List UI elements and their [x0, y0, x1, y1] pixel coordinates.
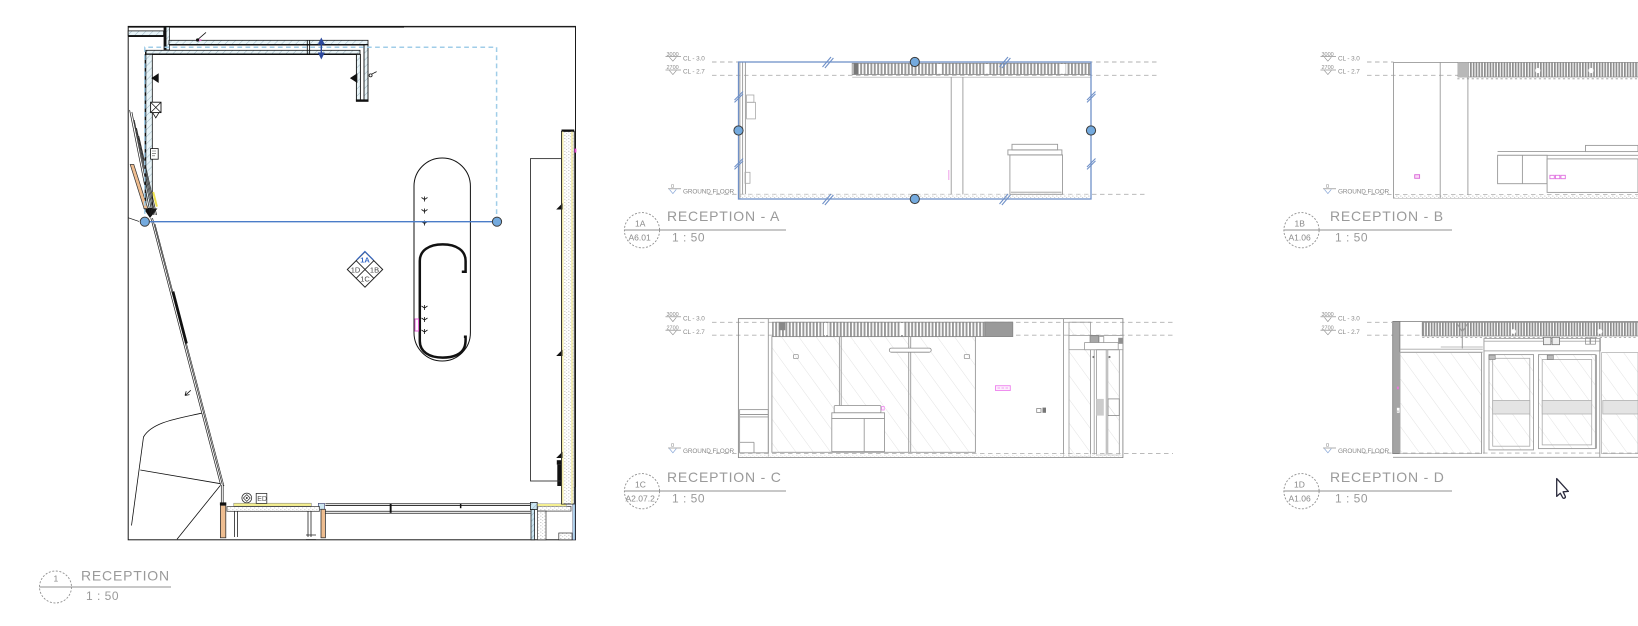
- svg-text:1 : 50: 1 : 50: [1335, 231, 1368, 245]
- svg-text:1 : 50: 1 : 50: [1335, 492, 1368, 506]
- svg-text:CL - 3.0: CL - 3.0: [683, 55, 705, 62]
- svg-text:CL - 3.0: CL - 3.0: [1338, 316, 1360, 323]
- svg-text:1: 1: [54, 574, 59, 584]
- svg-text:1 : 50: 1 : 50: [672, 231, 705, 245]
- svg-text:RECEPTION - B: RECEPTION - B: [1330, 208, 1444, 224]
- svg-text:ED: ED: [257, 496, 267, 503]
- svg-text:CL - 2.7: CL - 2.7: [683, 69, 705, 76]
- svg-text:1C: 1C: [635, 480, 646, 490]
- svg-text:CL - 2.7: CL - 2.7: [1338, 69, 1360, 76]
- svg-text:CL - 2.7: CL - 2.7: [683, 329, 705, 336]
- svg-text:1A: 1A: [635, 219, 646, 229]
- svg-text:1B: 1B: [1295, 219, 1306, 229]
- svg-text:1D: 1D: [1294, 480, 1305, 490]
- svg-text:A6.01: A6.01: [629, 232, 651, 242]
- svg-text:1 : 50: 1 : 50: [672, 492, 705, 506]
- svg-text:1A: 1A: [360, 256, 370, 265]
- svg-text:GROUND FLOOR: GROUND FLOOR: [1338, 448, 1389, 455]
- svg-text:1B: 1B: [370, 265, 379, 274]
- svg-text:GROUND FLOOR: GROUND FLOOR: [1338, 189, 1389, 196]
- svg-text:RECEPTION - D: RECEPTION - D: [1330, 469, 1445, 485]
- svg-text:RECEPTION - C: RECEPTION - C: [667, 469, 782, 485]
- svg-text:CL - 2.7: CL - 2.7: [1338, 329, 1360, 336]
- svg-text:A2.07.2: A2.07.2: [626, 493, 656, 503]
- svg-text:A1.06: A1.06: [1289, 493, 1311, 503]
- svg-text:RECEPTION - A: RECEPTION - A: [667, 208, 780, 224]
- svg-text:CL - 3.0: CL - 3.0: [683, 316, 705, 323]
- svg-text:GROUND FLOOR: GROUND FLOOR: [683, 189, 734, 196]
- svg-text:1D: 1D: [351, 265, 361, 274]
- svg-text:GROUND FLOOR: GROUND FLOOR: [683, 448, 734, 455]
- svg-text:1C: 1C: [360, 275, 370, 284]
- svg-text:RECEPTION: RECEPTION: [81, 568, 170, 584]
- svg-text:CL - 3.0: CL - 3.0: [1338, 55, 1360, 62]
- svg-text:1 : 50: 1 : 50: [86, 589, 119, 603]
- svg-text:A1.06: A1.06: [1289, 232, 1311, 242]
